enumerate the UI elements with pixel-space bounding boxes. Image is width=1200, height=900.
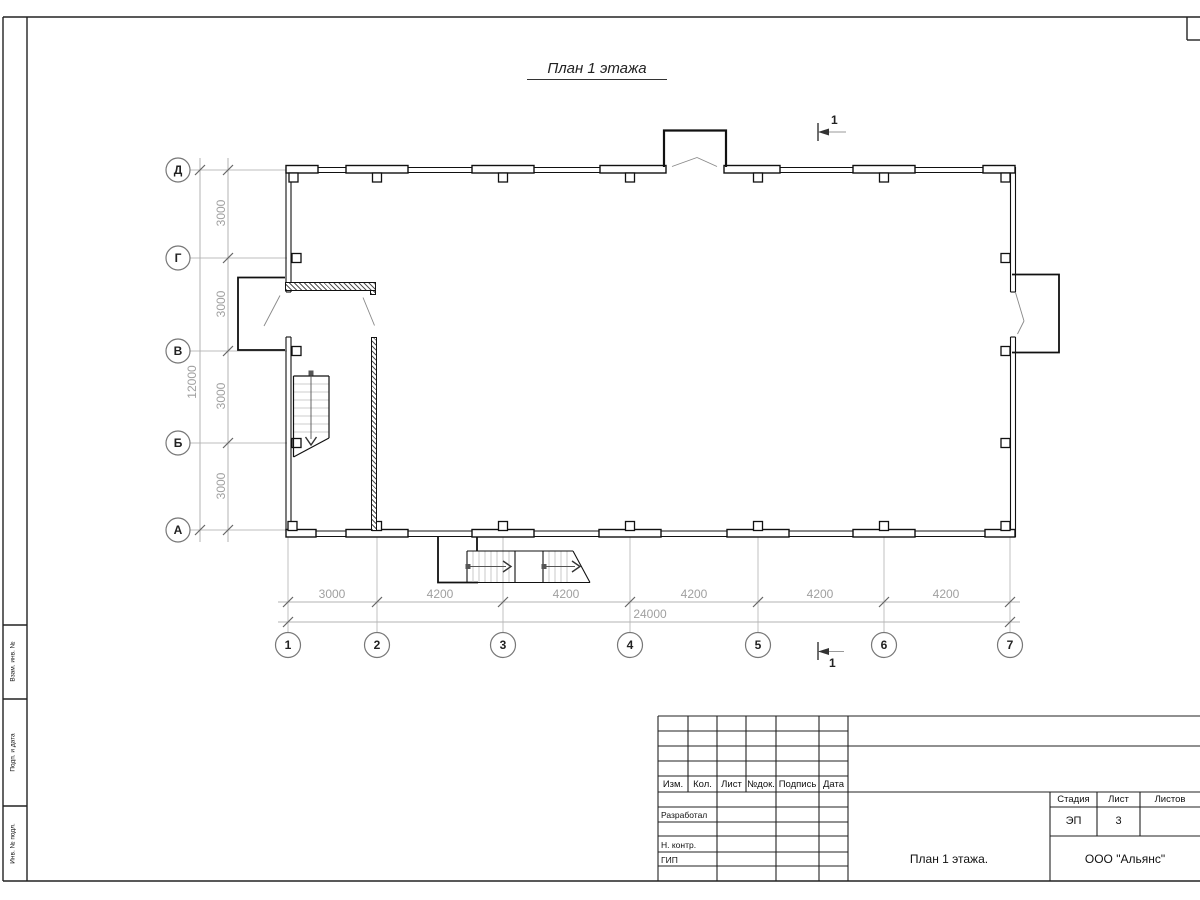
dim-h-4200-5: 4200 [916, 587, 976, 601]
axis-col-label-4: 4 [618, 638, 642, 652]
axis-row-label-b: Б [166, 436, 190, 450]
tb-header-data: Дата [819, 779, 848, 790]
axis-col-label-2: 2 [365, 638, 389, 652]
walls [286, 167, 1016, 537]
tb-company: ООО "Альянс" [1050, 852, 1200, 866]
axis-lines [190, 170, 1010, 632]
tb-header-izm: Изм. [658, 779, 688, 790]
dim-v-3000-2: 3000 [214, 274, 228, 334]
tb-role-razrabotal: Разработал [661, 810, 707, 820]
tb-sheet-label: Лист [1097, 794, 1140, 805]
partition-corner [370, 290, 376, 295]
tb-header-podpis: Подпись [776, 779, 819, 790]
vestibule [664, 131, 726, 168]
page-title: План 1 этажа [527, 60, 667, 80]
axis-col-label-1: 1 [276, 638, 300, 652]
dim-v-3000-4: 3000 [214, 456, 228, 516]
dim-h-3000: 3000 [302, 587, 362, 601]
partition-horizontal [285, 282, 376, 291]
dim-h-4200-3: 4200 [664, 587, 724, 601]
tb-role-nkontr: Н. контр. [661, 840, 696, 850]
axis-col-label-7: 7 [998, 638, 1022, 652]
dimension-lines [200, 158, 1020, 622]
tb-header-dok: №док. [746, 779, 776, 790]
frame-strip-label-1: Взам. инв. № [10, 632, 17, 692]
partition-vertical [371, 337, 377, 531]
dim-v-total-12000: 12000 [185, 347, 199, 417]
tb-stage-label: Стадия [1050, 794, 1097, 805]
entrance-stairs [466, 551, 591, 583]
dim-h-4200-1: 4200 [410, 587, 470, 601]
door-leaves [264, 158, 1024, 335]
dim-h-4200-4: 4200 [790, 587, 850, 601]
tb-header-kol: Кол. [688, 779, 717, 790]
tb-sheets-label: Листов [1140, 794, 1200, 805]
dim-v-3000-3: 3000 [214, 366, 228, 426]
wall-piers [286, 166, 1015, 538]
dim-v-3000-1: 3000 [214, 183, 228, 243]
tb-header-list: Лист [717, 779, 746, 790]
section-label-top: 1 [831, 113, 838, 127]
axis-col-label-6: 6 [872, 638, 896, 652]
dim-h-total-24000: 24000 [615, 607, 685, 621]
dimension-ticks [195, 165, 1015, 627]
axis-col-label-5: 5 [746, 638, 770, 652]
column-marks [288, 173, 1010, 531]
dim-h-4200-2: 4200 [536, 587, 596, 601]
tb-doc-name: План 1 этажа. [848, 852, 1050, 866]
tb-role-gip: ГИП [661, 855, 678, 865]
drawing-sheet: План 1 этажа Д Г В Б А 1 2 3 4 5 6 7 300… [0, 0, 1200, 900]
axis-row-label-d: Д [166, 163, 190, 177]
frame-strip-label-3: Инв. № подл. [10, 814, 17, 874]
drawing-linework [0, 0, 1200, 900]
tb-stage-value: ЭП [1050, 815, 1097, 827]
frame-strip-label-2: Подп. и дата [10, 723, 17, 783]
axis-col-label-3: 3 [491, 638, 515, 652]
axis-row-label-a: А [166, 523, 190, 537]
tb-sheet-value: 3 [1097, 815, 1140, 827]
section-label-bottom: 1 [829, 656, 836, 670]
axis-row-label-g: Г [166, 251, 190, 265]
